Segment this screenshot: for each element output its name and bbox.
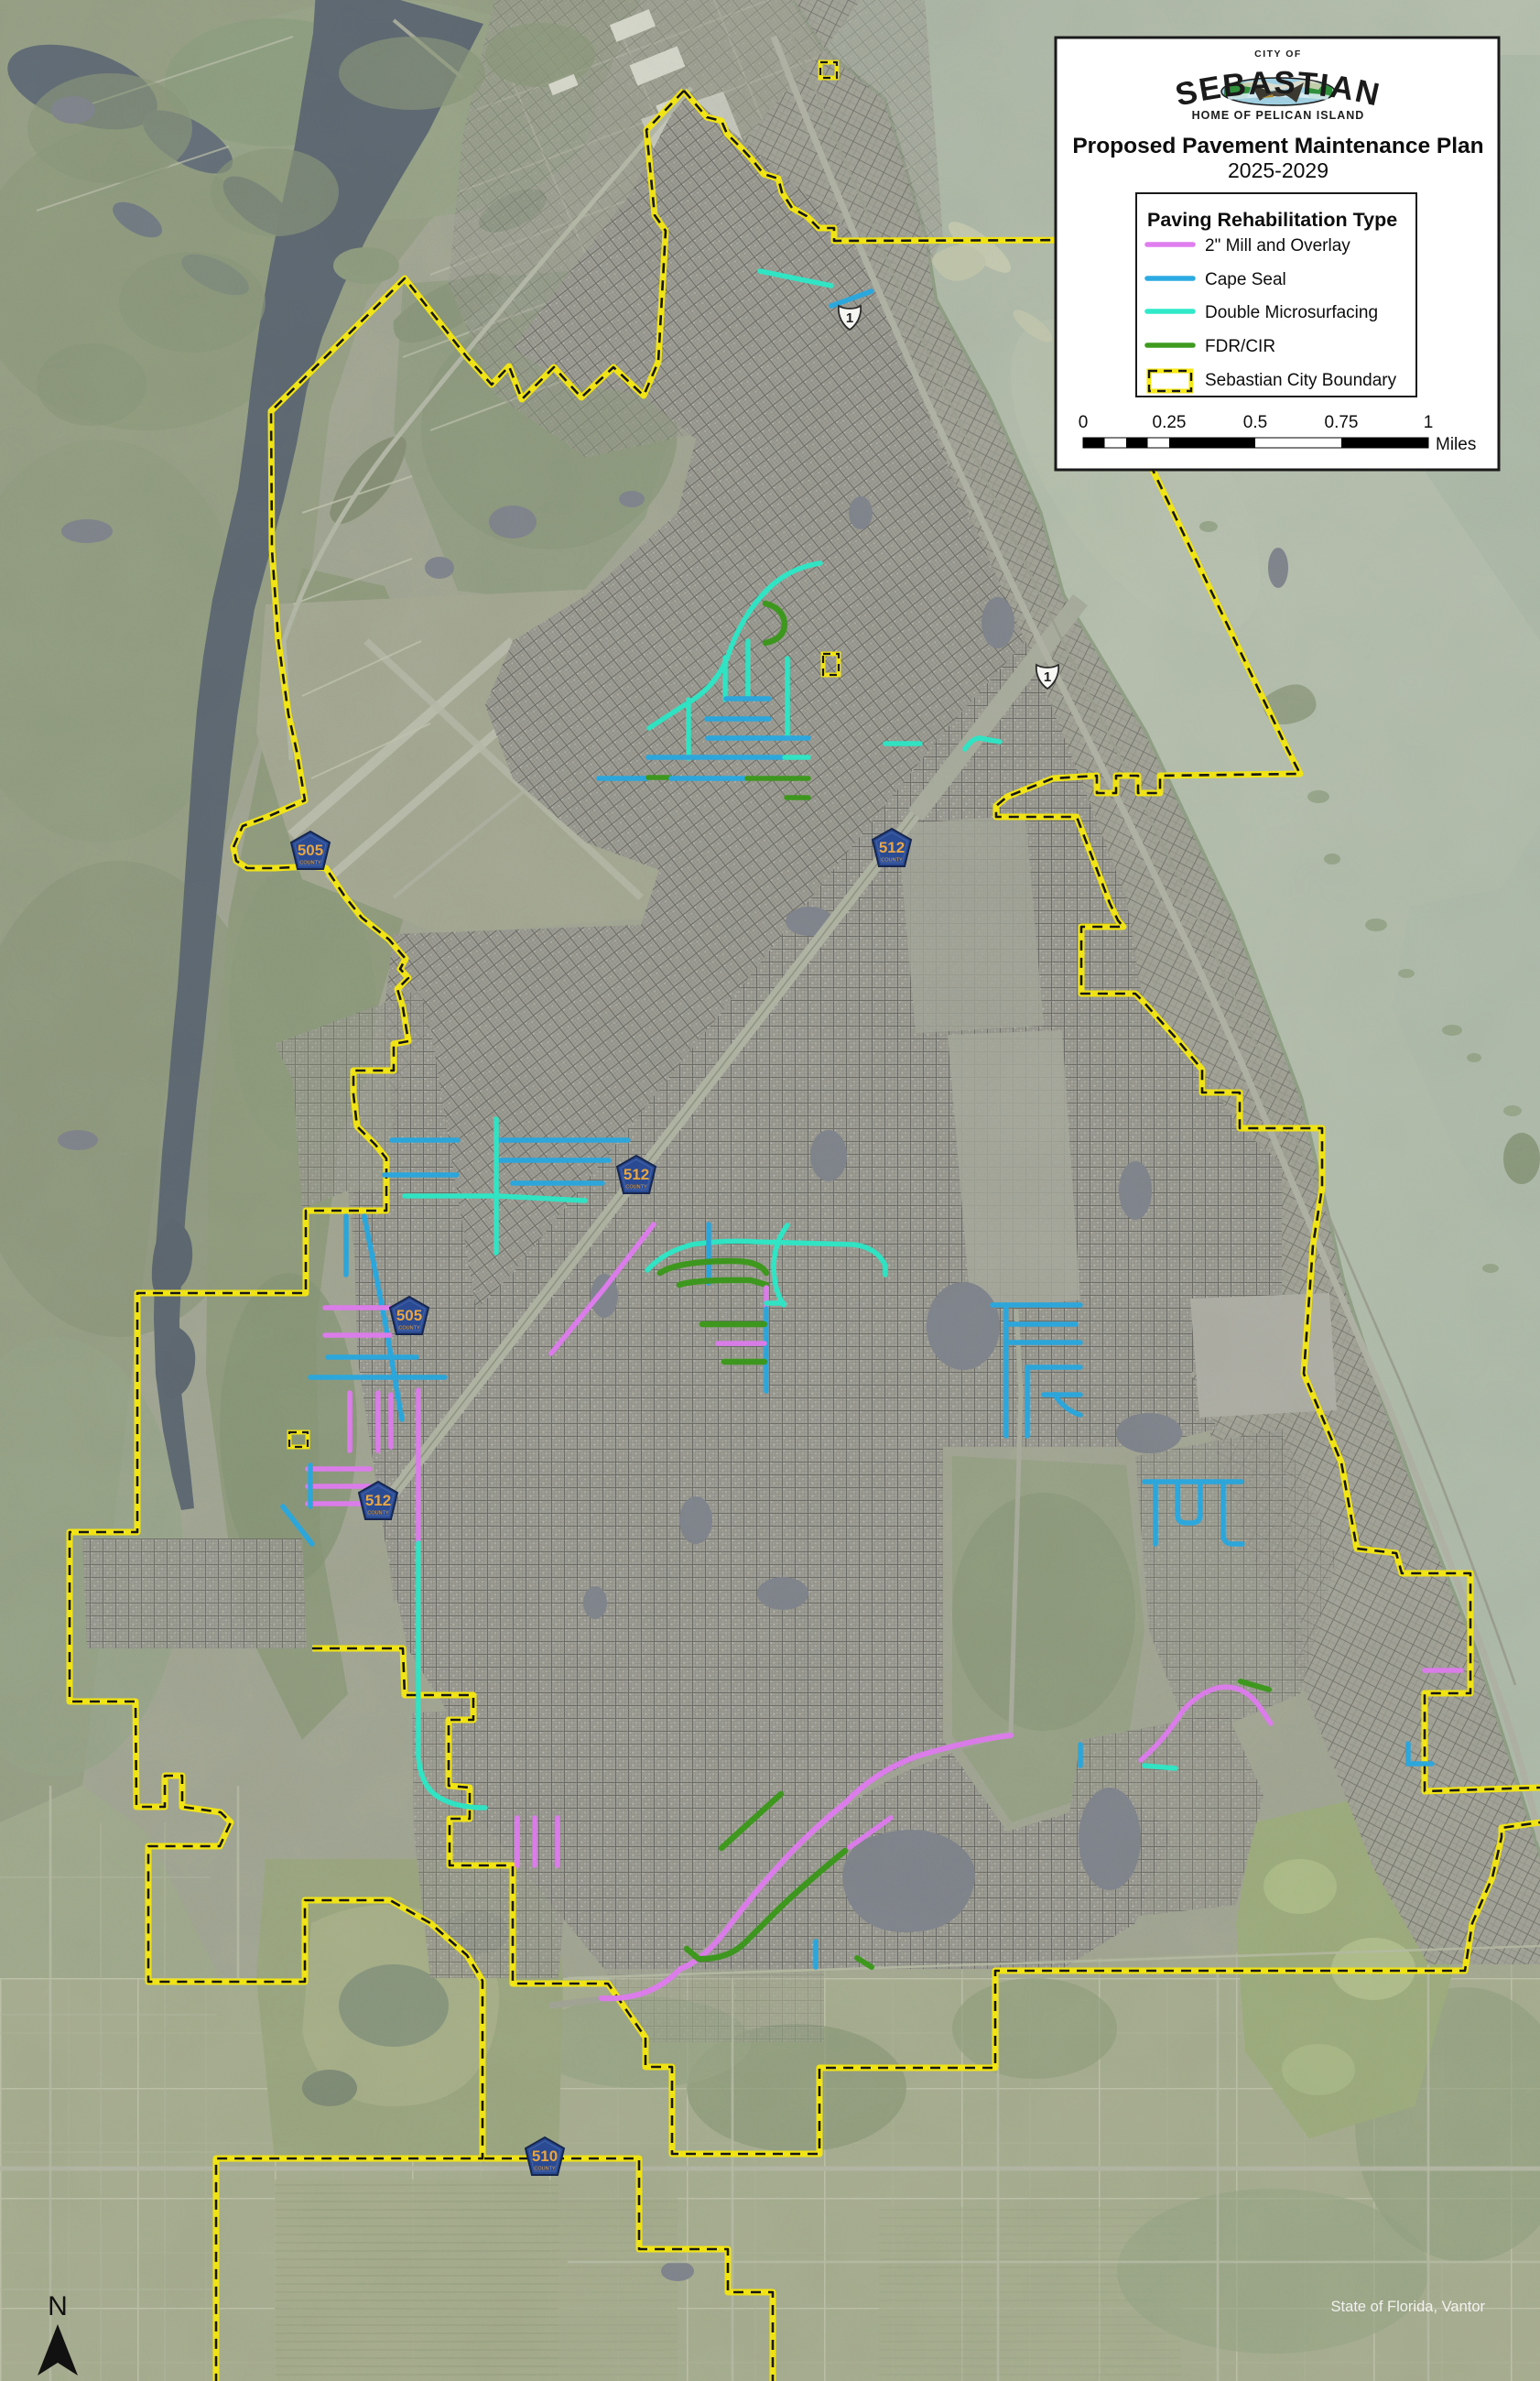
svg-text:CITY OF: CITY OF: [1254, 49, 1302, 60]
svg-text:1: 1: [1424, 413, 1434, 432]
svg-text:0.75: 0.75: [1325, 413, 1359, 432]
svg-text:Paving Rehabilitation Type: Paving Rehabilitation Type: [1147, 209, 1397, 231]
svg-text:Cape Seal: Cape Seal: [1205, 270, 1286, 289]
svg-text:FDR/CIR: FDR/CIR: [1205, 337, 1275, 356]
svg-text:HOME OF PELICAN ISLAND: HOME OF PELICAN ISLAND: [1192, 109, 1365, 122]
svg-text:0.5: 0.5: [1243, 413, 1267, 432]
svg-text:N: N: [48, 2291, 68, 2321]
svg-text:2025-2029: 2025-2029: [1228, 158, 1329, 182]
svg-text:Miles: Miles: [1436, 435, 1476, 454]
svg-text:0.25: 0.25: [1153, 413, 1187, 432]
svg-text:0: 0: [1079, 413, 1089, 432]
svg-text:Sebastian City Boundary: Sebastian City Boundary: [1205, 371, 1397, 390]
svg-text:Double Microsurfacing: Double Microsurfacing: [1205, 303, 1378, 322]
svg-text:2" Mill and Overlay: 2" Mill and Overlay: [1205, 236, 1350, 255]
svg-text:State of Florida, Vantor: State of Florida, Vantor: [1331, 2299, 1486, 2315]
svg-text:Proposed Pavement Maintenance: Proposed Pavement Maintenance Plan: [1072, 134, 1483, 158]
